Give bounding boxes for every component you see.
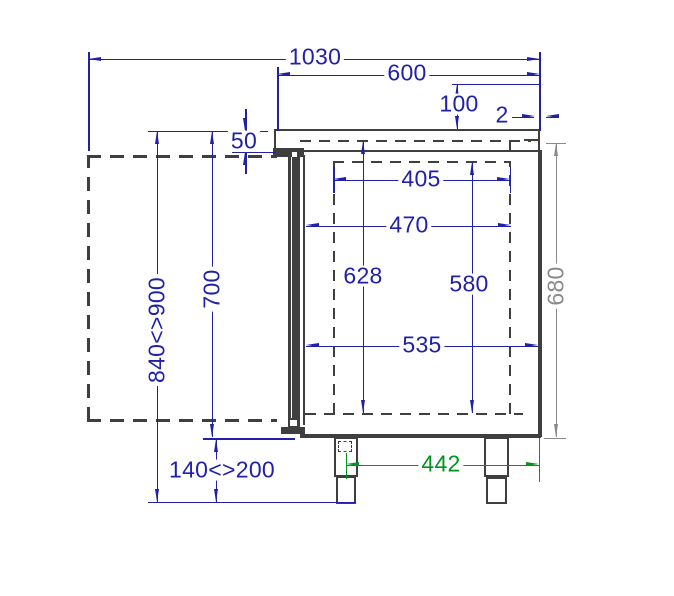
dim-50-label: 50 xyxy=(228,131,260,152)
door-top-hinge-pin xyxy=(292,152,297,157)
dim-628-arrow-up xyxy=(361,141,365,154)
dim-442-label: 442 xyxy=(418,454,463,475)
interior-dashed-left xyxy=(333,161,335,414)
dim-680-tick-bottom xyxy=(544,438,566,440)
dim-580-arrow-up xyxy=(470,162,474,175)
dim-470-label: 470 xyxy=(386,215,431,236)
door-top-hinge xyxy=(273,148,304,157)
dim-1030-ext-left xyxy=(88,52,90,151)
door-swing-dashed-top xyxy=(87,155,277,158)
dim-405-label: 405 xyxy=(398,169,443,190)
door-panel-core-line xyxy=(291,154,292,426)
dim-50-arrow-up xyxy=(243,152,247,165)
dim-580-label: 580 xyxy=(446,274,491,295)
dim-2-label: 2 xyxy=(492,105,511,126)
dim-100-line xyxy=(452,84,540,86)
dim-100-label: 100 xyxy=(436,94,481,115)
interior-dashed-top xyxy=(333,161,510,163)
dim-680-arrow-down xyxy=(554,424,558,437)
dim-470-arrow-left xyxy=(306,223,319,227)
dim-405-arrow-left xyxy=(333,177,346,181)
dim-700-arrow-down xyxy=(210,424,214,437)
dim-140-200-label: 140<>200 xyxy=(166,460,278,481)
left-leg-foot xyxy=(336,476,356,504)
worktop-back-profile-tick xyxy=(524,139,538,141)
door-swing-dashed-bottom xyxy=(87,419,277,422)
dim-600-ext-left xyxy=(277,67,279,131)
dim-1030-label: 1030 xyxy=(286,47,344,68)
worktop-underside-dashed-line xyxy=(300,140,531,142)
dim-600-arrow-right xyxy=(527,72,540,76)
dim-628-arrow-down xyxy=(361,400,365,413)
dim-600-arrow-left xyxy=(277,72,290,76)
dim-840-900-arrow-up xyxy=(155,131,159,144)
dim-442-ext-left xyxy=(346,453,348,479)
dim-680-arrow-up xyxy=(554,143,558,156)
dim-535-arrow-left xyxy=(306,343,319,347)
dim-840-900-label: 840<>900 xyxy=(147,274,168,386)
dim-442-arrow-right xyxy=(526,462,539,466)
dim-2-arrow-right xyxy=(522,114,535,118)
dim-628-label: 628 xyxy=(340,266,385,287)
dim-1030-ext-right xyxy=(539,52,541,131)
back-wall xyxy=(538,150,542,437)
dim-1030-arrow-left xyxy=(88,57,101,61)
interior-dashed-bottom xyxy=(305,413,523,415)
dim-140-200-arrow-up xyxy=(214,439,218,452)
dim-580-arrow-down xyxy=(470,400,474,413)
dim-442-arrow-left xyxy=(346,462,359,466)
door-bottom-bracket xyxy=(288,418,299,428)
dim-470-arrow-right xyxy=(498,223,511,227)
interior-dashed-right xyxy=(509,161,511,414)
dim-1030-arrow-right xyxy=(527,57,540,61)
left-leg-adjuster-dashed xyxy=(338,441,352,452)
door-bottom-hinge xyxy=(281,427,305,434)
dim-600-label: 600 xyxy=(384,63,429,84)
back-upstand-stub xyxy=(509,141,511,152)
door-inner-face-line xyxy=(303,155,305,425)
dim-840-900-arrow-down xyxy=(155,489,159,502)
dim-535-label: 535 xyxy=(399,335,444,356)
dim-100-arrow-down xyxy=(455,116,459,129)
dim-140-200-arrow-down xyxy=(214,489,218,502)
floor-line xyxy=(148,502,356,504)
dim-535-arrow-right xyxy=(525,343,538,347)
dim-680-label: 680 xyxy=(546,263,567,308)
dim-405-arrow-right xyxy=(497,177,510,181)
dim-2-arrow-left xyxy=(546,114,559,118)
door-swing-dashed-left xyxy=(87,155,90,421)
right-leg-upper xyxy=(484,437,509,477)
right-leg-foot xyxy=(486,477,507,504)
technical-drawing-canvas: 1030 600 100 2 50 405 470 628 580 535 70… xyxy=(0,0,674,596)
dim-442-ext-right xyxy=(539,438,541,482)
dim-700-label: 700 xyxy=(202,266,223,311)
dim-700-arrow-up xyxy=(210,131,214,144)
